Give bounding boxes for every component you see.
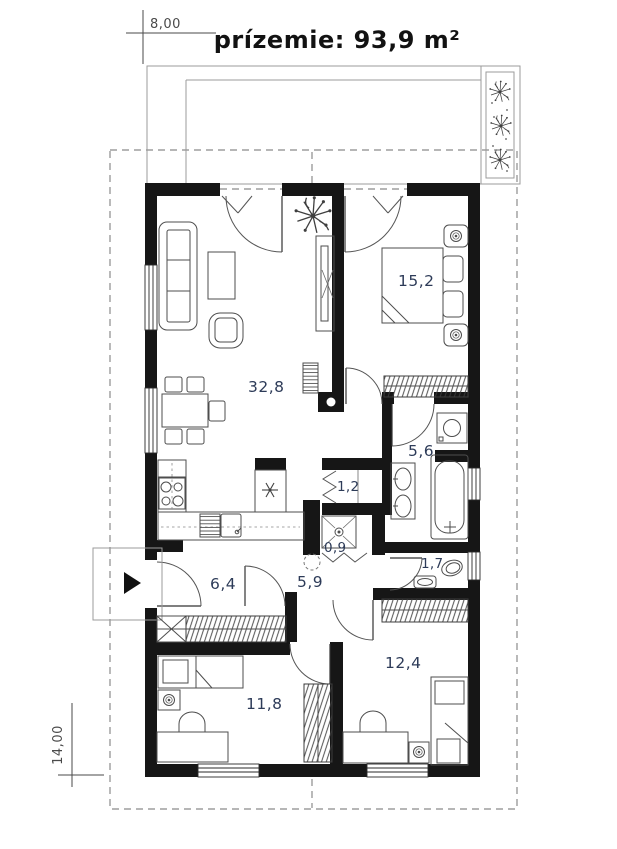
dimension-height: 14,00 [51,703,104,787]
floor-plan-drawing: prízemie: 93,9 m² 8,00 14,00 [0,0,617,849]
room-label-bedroom-left: 11,8 [246,695,283,713]
window-living-1 [145,265,157,330]
heater-box [303,363,318,393]
bedroom-right [343,599,468,765]
bedroom-left-door [290,644,330,684]
entry-hall [157,616,286,642]
room-label-living: 32,8 [248,378,285,396]
single-bed-left [158,656,243,688]
nightstand-bottom [444,324,468,346]
dimension-width-label: 8,00 [150,17,181,32]
window-bathroom [468,468,480,500]
single-bed-right [431,677,468,765]
floor-plan-page: prízemie: 93,9 m² 8,00 14,00 [0,0,617,849]
entrance-arrow-icon [124,572,141,594]
room-label-shower: 0,9 [324,540,346,556]
dining-set [162,377,225,444]
bedroom-main [382,225,468,397]
ceiling-hatch-dashed [304,554,320,570]
desk-right [343,711,408,763]
room-label-closet: 1,2 [337,479,359,495]
room-label-corridor: 5,9 [297,573,323,591]
small-sink [414,576,436,588]
coffee-table [208,252,235,299]
window-bedroom-right [367,764,428,777]
dimension-height-label: 14,00 [51,725,66,765]
wardrobe-right [382,599,468,622]
fridge [255,470,286,512]
stove-icon [159,478,185,509]
room-label-bedroom-right: 12,4 [385,654,422,672]
terrace-door-living [220,189,282,252]
room-label-hall: 6,4 [210,575,236,593]
desk-left [157,712,228,762]
chimney-icon [327,398,336,407]
bedroom-main-door [346,368,382,404]
wardrobe-main [384,376,468,397]
window-bedroom-left [198,764,259,777]
window-living-2 [145,388,157,453]
sofa [159,222,197,330]
kitchen [158,460,304,540]
bathroom [391,413,468,539]
hall-corridor-door [245,566,285,606]
plant-icon [295,196,332,233]
hall-wardrobe [157,616,286,642]
sink-unit [200,514,241,537]
planter-strip [486,72,514,178]
terrace-door-bedroom [344,189,407,252]
terrace [147,66,520,184]
wardrobe-left [304,684,332,762]
bathtub [431,455,468,539]
entrance-door [157,562,201,606]
nightstand-left [158,690,180,710]
dimension-width: 8,00 [126,10,216,64]
tv-cabinet [316,236,334,331]
closet-bifold-door [323,471,336,503]
bedroom-right-door [333,600,373,640]
washing-machine [437,413,467,443]
living-room [158,196,334,540]
wc-door [390,558,422,590]
bathroom-door [392,404,434,446]
nightstand-top [444,225,468,247]
toilet [440,558,465,579]
armchair [209,313,243,348]
room-label-bathroom: 5,6 [408,442,434,460]
bedroom-left [157,656,332,762]
room-label-bedroom-main: 15,2 [398,272,435,290]
double-sink [391,463,415,519]
snowflake-icon [262,483,278,497]
nightstand-right [409,742,429,763]
window-wc [468,552,480,580]
page-title: prízemie: 93,9 m² [214,26,461,54]
room-label-wc: 1,7 [421,556,443,572]
